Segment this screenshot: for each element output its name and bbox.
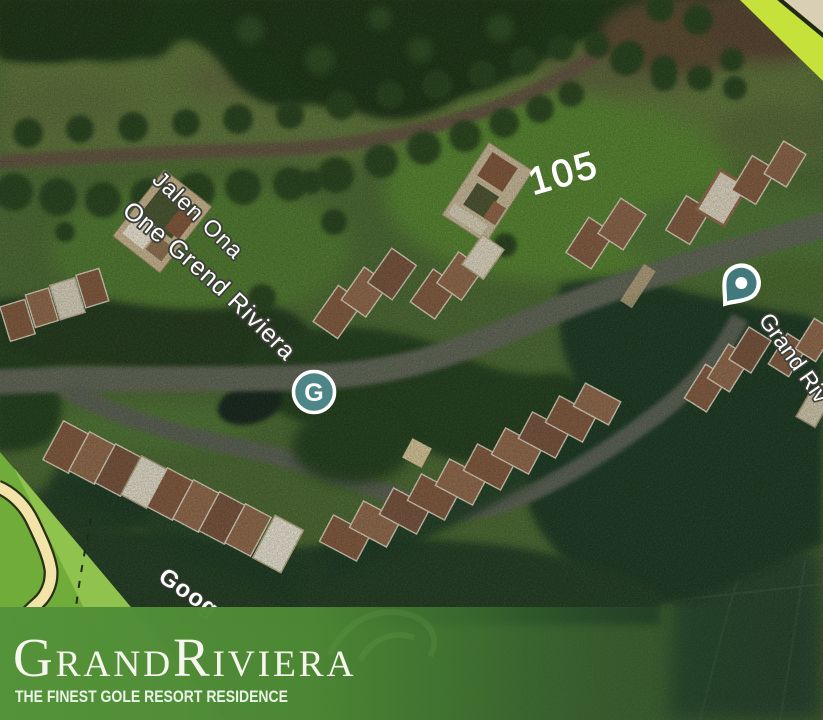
svg-text:G: G (304, 379, 323, 407)
svg-text:THE FINEST GOLE RESORT RESIDEN: THE FINEST GOLE RESORT RESIDENCE (15, 688, 288, 706)
